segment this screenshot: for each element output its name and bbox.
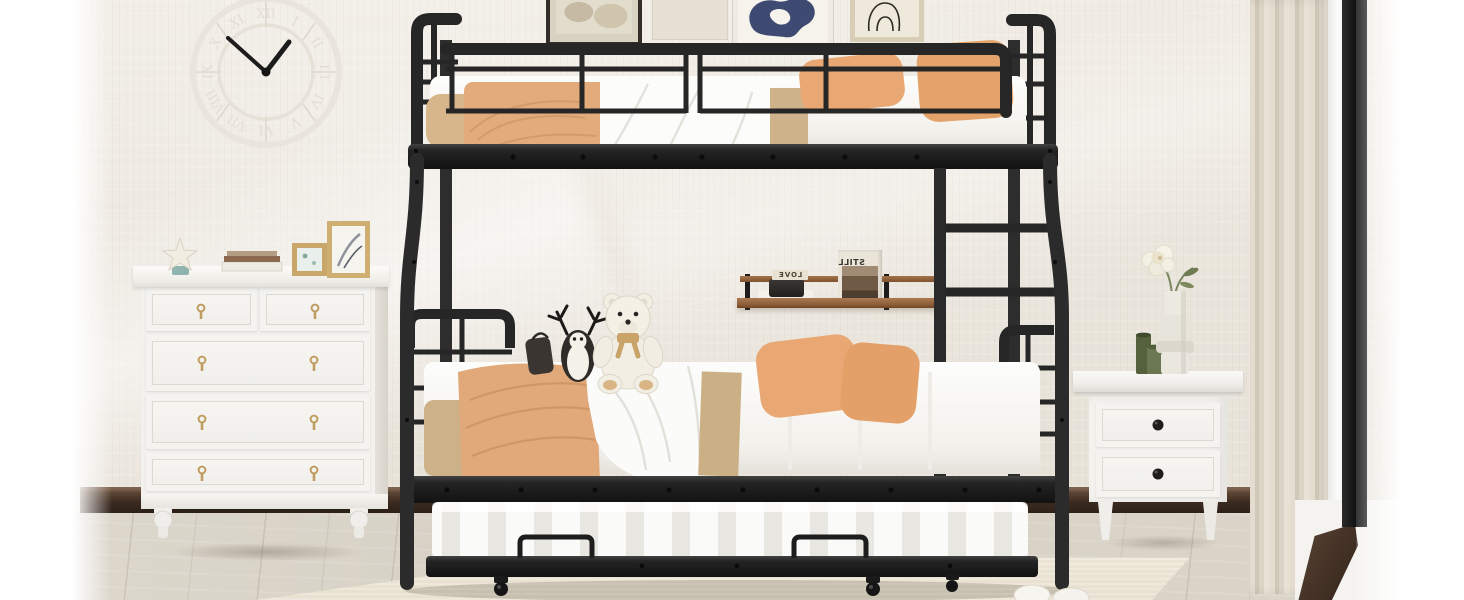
peony-flower <box>1142 245 1175 276</box>
nightstand-legs <box>1098 502 1218 540</box>
caster-wheel <box>866 576 880 596</box>
bedroom-scene: LOVE STILL <box>0 0 1464 600</box>
lower-bunk-bedding <box>424 332 1040 487</box>
upper-tan-blanket <box>464 82 608 149</box>
lower-frame-rail <box>400 476 1064 503</box>
upper-frame-rail <box>408 144 1058 169</box>
clock-numeral: I <box>289 14 301 30</box>
clock-numeral: V <box>286 112 303 130</box>
clock-numeral: X <box>207 35 225 51</box>
starfish-decor <box>163 238 197 275</box>
clock-numeral: III <box>316 64 331 79</box>
book-stack <box>222 251 282 271</box>
upper-bunk-bedding <box>426 39 1026 150</box>
clock-numeral: VI <box>259 122 275 137</box>
flower-vase <box>1136 245 1200 374</box>
trundle-frame <box>426 556 1038 577</box>
dresser-pulls <box>198 305 319 481</box>
dresser-legs <box>154 508 368 538</box>
upper-pillow-orange-1 <box>797 51 906 116</box>
photo-frame-small <box>292 243 327 276</box>
lower-khaki-satin <box>698 371 742 476</box>
wall-clock: XII I II III IV V VI VII VIII IX X XI <box>193 0 339 145</box>
clock-numeral: XII <box>256 7 276 22</box>
photo-frame-large <box>327 221 370 278</box>
lower-pillow-orange-2 <box>839 341 922 425</box>
lower-tan-blanket <box>458 363 600 487</box>
teddy-bear <box>590 294 666 394</box>
hand-bag <box>525 333 555 375</box>
detail-layer: XII I II III IV V VI VII VIII IX X XI <box>0 0 1464 600</box>
clock-hands <box>228 38 289 77</box>
clock-numeral: II <box>307 35 325 51</box>
front-left-leg <box>407 160 417 583</box>
front-right-leg <box>1050 160 1062 583</box>
nightstand-knobs <box>1153 420 1164 480</box>
caster-wheel <box>494 576 508 596</box>
clock-numeral: IX <box>201 64 216 79</box>
bunk-bed <box>400 19 1075 600</box>
